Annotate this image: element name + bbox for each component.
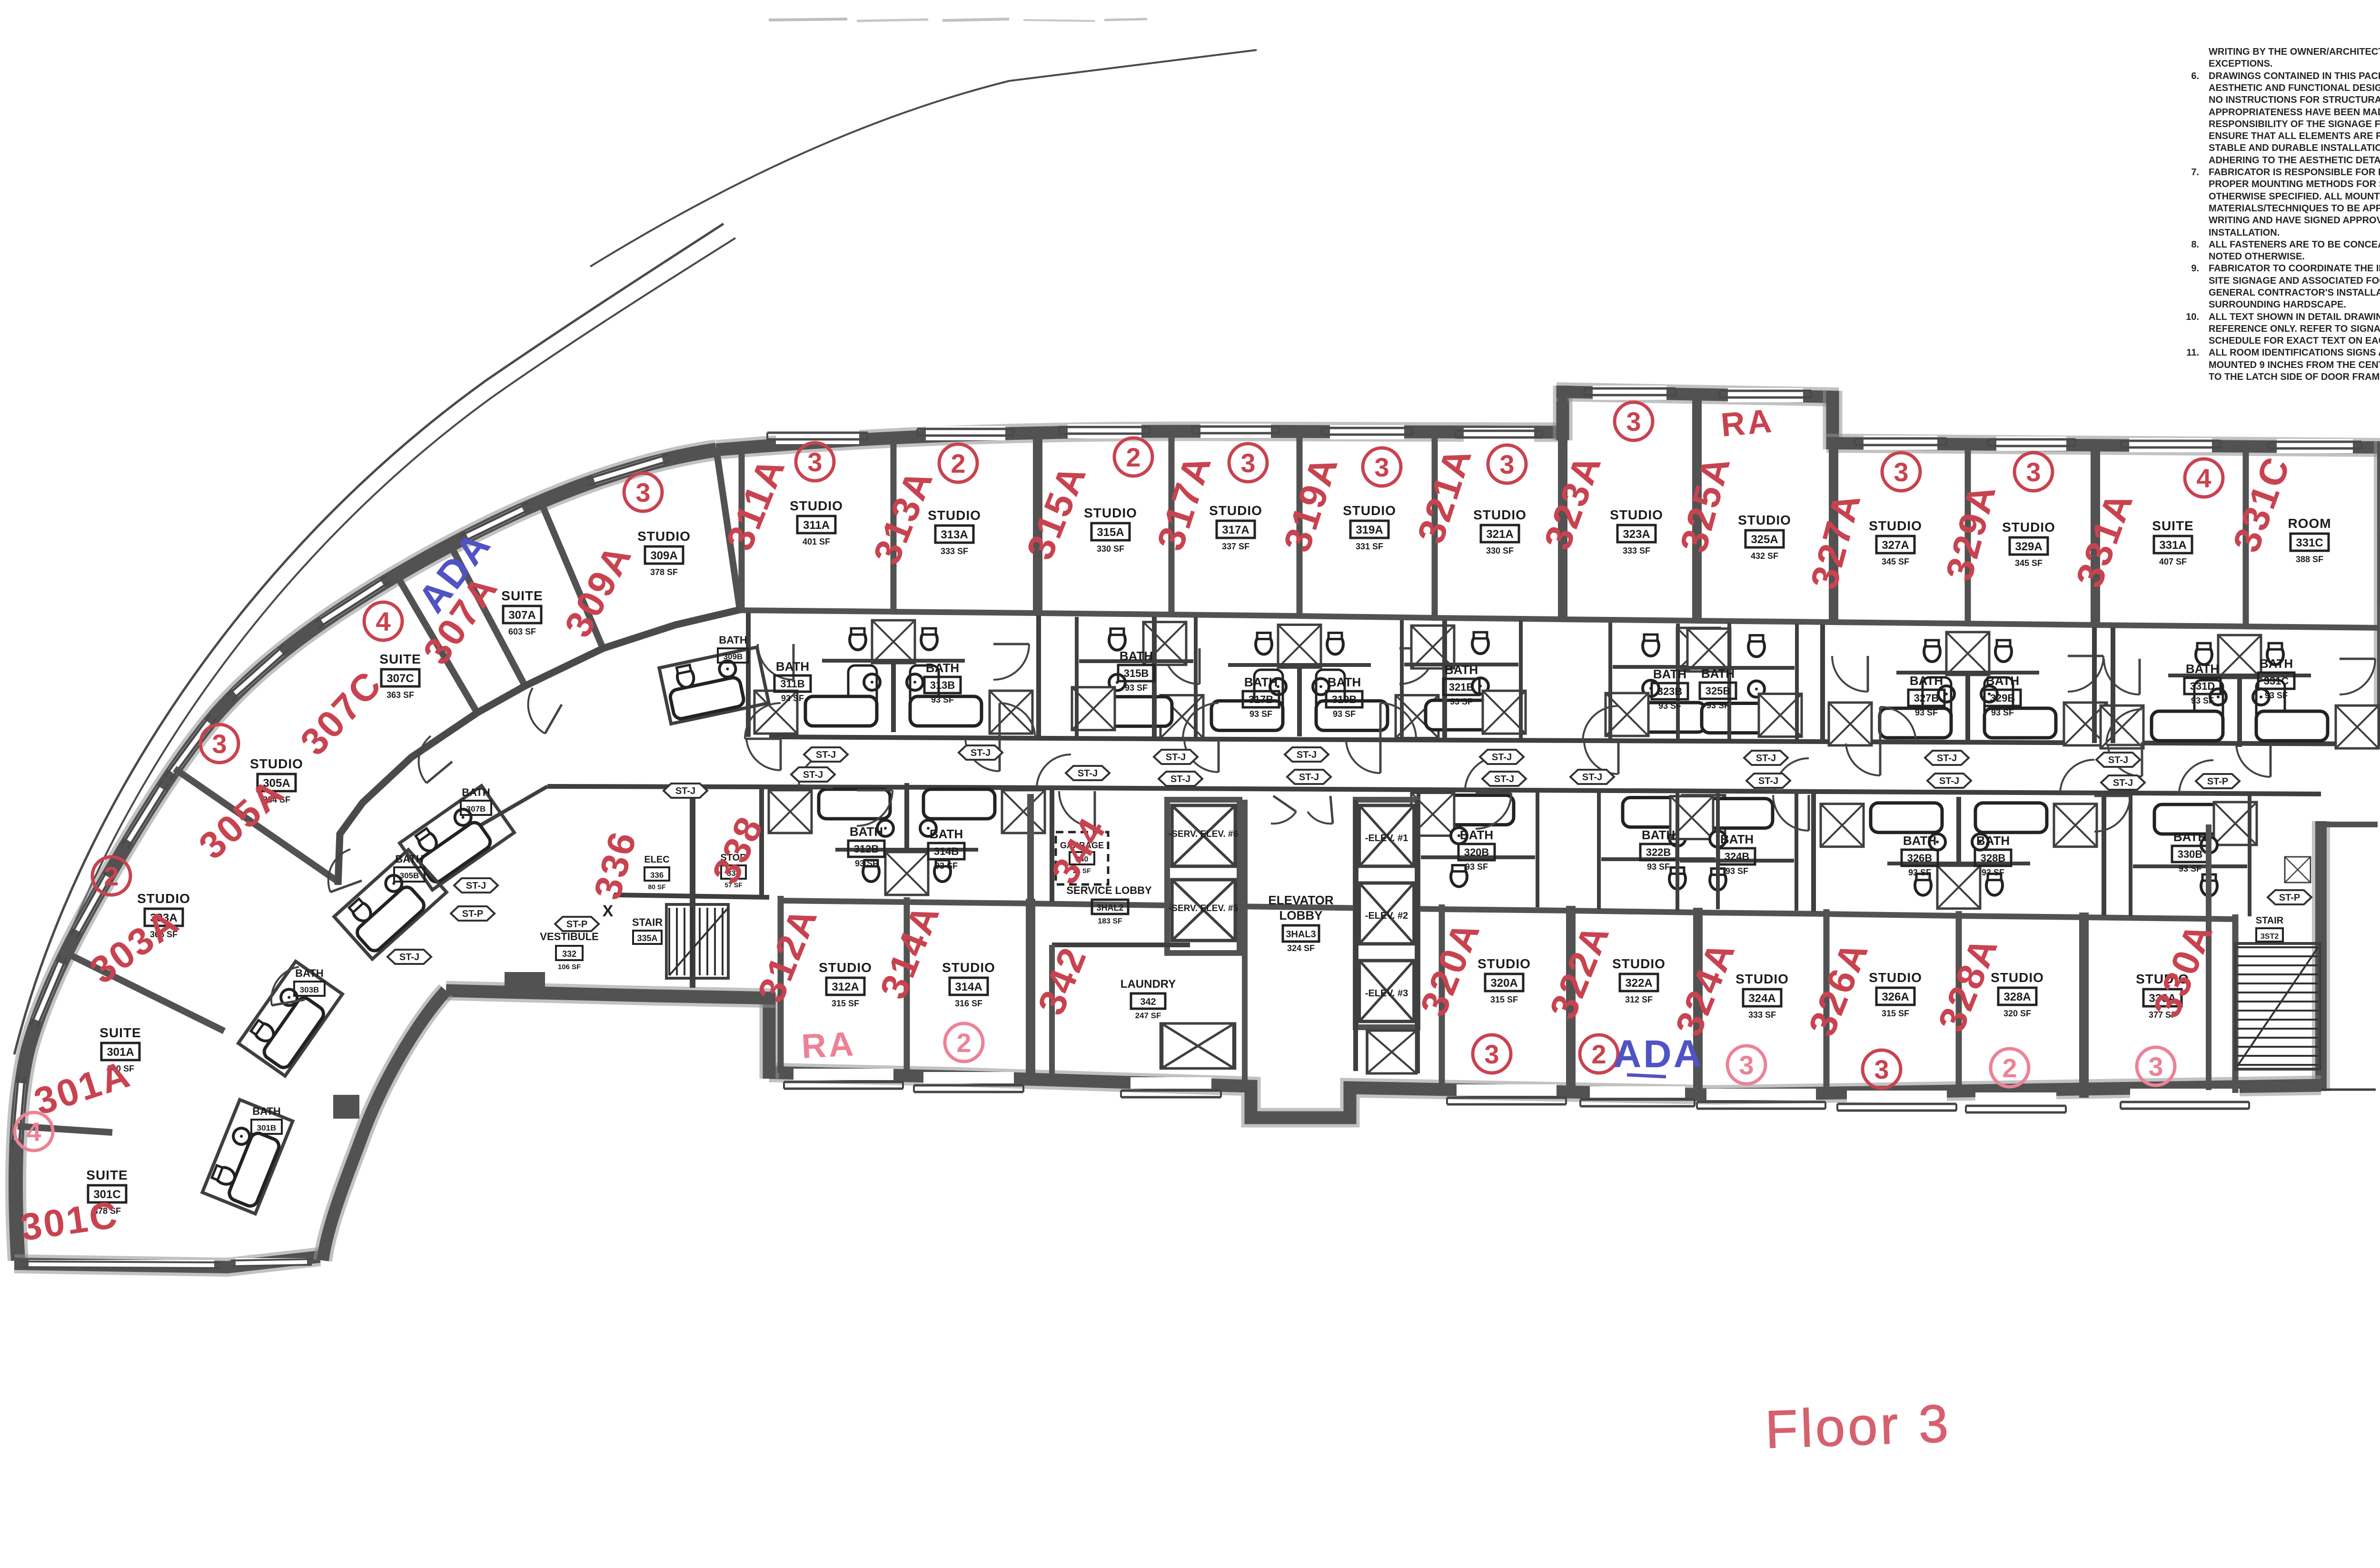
svg-text:4: 4: [376, 606, 390, 636]
svg-text:GENERAL CONTRACTOR'S INSTALLAT: GENERAL CONTRACTOR'S INSTALLATION OF T: [2209, 288, 2380, 298]
svg-text:SCHEDULE FOR EXACT TEXT ON EAC: SCHEDULE FOR EXACT TEXT ON EACH SIGN.: [2209, 336, 2380, 346]
svg-text:345 SF: 345 SF: [2015, 558, 2043, 568]
svg-text:DRAWINGS CONTAINED IN THIS PAC: DRAWINGS CONTAINED IN THIS PACKAGE AR: [2209, 71, 2380, 81]
svg-text:321B: 321B: [1449, 681, 1474, 693]
svg-text:336: 336: [650, 871, 664, 880]
svg-text:3: 3: [212, 729, 227, 759]
svg-text:BATH: BATH: [1701, 666, 1735, 681]
svg-text:345 SF: 345 SF: [1882, 557, 1909, 566]
svg-text:326A: 326A: [1882, 991, 1909, 1003]
svg-text:93 SF: 93 SF: [1706, 701, 1729, 710]
svg-text:401 SF: 401 SF: [803, 537, 830, 546]
svg-text:BATH: BATH: [850, 824, 883, 839]
svg-text:ENSURE THAT ALL ELEMENTS ARE F: ENSURE THAT ALL ELEMENTS ARE FABRICATE: [2209, 131, 2380, 141]
svg-text:PROPER MOUNTING METHODS FOR SI: PROPER MOUNTING METHODS FOR SIGNS UI: [2209, 179, 2380, 189]
svg-text:331D: 331D: [2190, 680, 2215, 692]
svg-text:7.: 7.: [2191, 167, 2199, 178]
svg-text:315 SF: 315 SF: [1490, 995, 1518, 1004]
svg-text:333 SF: 333 SF: [941, 546, 968, 556]
svg-text:WRITING AND HAVE SIGNED APPROV: WRITING AND HAVE SIGNED APPROVAL PRIO: [2209, 215, 2380, 226]
svg-text:333 SF: 333 SF: [1748, 1010, 1776, 1020]
svg-text:STUDIO: STUDIO: [1869, 518, 1922, 533]
svg-text:3: 3: [1240, 448, 1255, 478]
svg-text:309A: 309A: [650, 549, 677, 562]
svg-text:320 SF: 320 SF: [2003, 1009, 2031, 1018]
svg-text:311B: 311B: [780, 678, 804, 690]
svg-text:3: 3: [1894, 457, 1908, 487]
svg-text:2: 2: [104, 861, 119, 891]
svg-text:ALL FASTENERS ARE TO BE CONCEA: ALL FASTENERS ARE TO BE CONCEALED UNLE: [2209, 239, 2380, 250]
svg-text:3: 3: [635, 477, 650, 507]
svg-text:BATH: BATH: [1910, 674, 1943, 688]
svg-text:BATH: BATH: [719, 634, 747, 646]
svg-text:317A: 317A: [1222, 524, 1249, 536]
svg-text:93 SF: 93 SF: [1249, 709, 1272, 719]
svg-text:ALL ROOM IDENTIFICATIONS SIGNS: ALL ROOM IDENTIFICATIONS SIGNS ARE TO B: [2209, 347, 2380, 358]
svg-text:BATH: BATH: [462, 786, 490, 798]
svg-text:93 SF: 93 SF: [1982, 868, 2004, 877]
svg-text:93 SF: 93 SF: [1647, 862, 1670, 872]
svg-text:STUDIO: STUDIO: [1738, 513, 1791, 527]
svg-text:93 SF: 93 SF: [1725, 866, 1748, 876]
svg-text:STUDIO: STUDIO: [1209, 503, 1262, 518]
svg-text:BATH: BATH: [1642, 828, 1675, 842]
svg-text:ELEVATOR: ELEVATOR: [1268, 893, 1333, 907]
svg-text:BATH: BATH: [2260, 656, 2293, 671]
svg-text:BATH: BATH: [2173, 830, 2207, 844]
svg-text:2: 2: [1126, 442, 1140, 472]
svg-text:2: 2: [956, 1028, 971, 1058]
svg-text:331C: 331C: [2296, 536, 2323, 549]
svg-text:BATH: BATH: [1986, 674, 2019, 688]
svg-text:3: 3: [1739, 1050, 1754, 1080]
svg-text:AESTHETIC AND FUNCTIONAL DESIG: AESTHETIC AND FUNCTIONAL DESIGN INTENT: [2209, 83, 2380, 93]
svg-text:3: 3: [1484, 1039, 1499, 1069]
svg-text:ELEC: ELEC: [644, 854, 669, 865]
svg-text:3: 3: [1499, 449, 1514, 479]
svg-text:2: 2: [1591, 1039, 1606, 1069]
svg-text:BATH: BATH: [930, 827, 963, 841]
svg-text:BATH: BATH: [1460, 828, 1493, 842]
svg-text:324A: 324A: [1748, 992, 1775, 1005]
svg-text:Floor 3: Floor 3: [1764, 1393, 1952, 1459]
svg-text:-ELEV. #2: -ELEV. #2: [1365, 911, 1408, 921]
svg-text:6.: 6.: [2191, 71, 2199, 81]
svg-text:93 SF: 93 SF: [1915, 708, 1938, 717]
svg-text:BATH: BATH: [1244, 675, 1278, 689]
svg-text:407 SF: 407 SF: [2159, 557, 2187, 566]
svg-text:183 SF: 183 SF: [1098, 917, 1122, 925]
svg-text:309B: 309B: [724, 652, 743, 661]
svg-text:BATH: BATH: [2186, 662, 2219, 676]
svg-text:305B: 305B: [400, 871, 419, 880]
svg-text:325A: 325A: [1751, 533, 1778, 546]
svg-text:OTHERWISE SPECIFIED. ALL MOUN: OTHERWISE SPECIFIED. ALL MOUNTING: [2209, 191, 2380, 202]
svg-text:328A: 328A: [2003, 991, 2031, 1003]
svg-text:BATH: BATH: [926, 661, 959, 675]
svg-text:STUDIO: STUDIO: [1991, 970, 2044, 985]
svg-text:320A: 320A: [1490, 977, 1517, 990]
svg-text:ROOM: ROOM: [2288, 516, 2331, 531]
svg-text:-ELEV. #3: -ELEV. #3: [1365, 988, 1408, 999]
svg-text:247 SF: 247 SF: [1135, 1011, 1161, 1020]
svg-text:335A: 335A: [637, 933, 657, 943]
svg-text:3HAL2: 3HAL2: [1096, 903, 1123, 913]
svg-text:3: 3: [2026, 457, 2041, 487]
svg-text:328B: 328B: [1981, 852, 2006, 864]
svg-text:331C: 331C: [2264, 675, 2289, 687]
svg-text:2: 2: [951, 448, 965, 478]
svg-text:REFERENCE ONLY. REFER TO SIGN: REFERENCE ONLY. REFER TO SIGNAGE MESSA: [2209, 324, 2380, 334]
svg-text:332: 332: [562, 949, 576, 959]
svg-text:4: 4: [2196, 463, 2211, 493]
svg-text:3: 3: [2148, 1052, 2163, 1082]
svg-text:BATH: BATH: [1328, 675, 1361, 689]
svg-text:315 SF: 315 SF: [832, 999, 859, 1008]
svg-text:3HAL3: 3HAL3: [1286, 929, 1316, 940]
svg-text:311A: 311A: [803, 519, 830, 532]
svg-text:9.: 9.: [2191, 263, 2199, 274]
svg-text:BATH: BATH: [395, 853, 423, 865]
svg-text:MOUNTED 9 INCHES FROM THE CENT: MOUNTED 9 INCHES FROM THE CENTER OF T: [2209, 360, 2380, 370]
svg-text:312B: 312B: [854, 843, 879, 855]
svg-text:MATERIALS/TECHNIQUES TO BE APP: MATERIALS/TECHNIQUES TO BE APPROVED II: [2209, 203, 2380, 214]
svg-text:325B: 325B: [1706, 685, 1731, 697]
svg-text:330 SF: 330 SF: [1097, 544, 1124, 554]
svg-text:STUDIO: STUDIO: [1478, 956, 1531, 971]
svg-text:NOTED OTHERWISE.: NOTED OTHERWISE.: [2209, 251, 2305, 262]
svg-text:93 SF: 93 SF: [781, 694, 804, 703]
svg-text:324B: 324B: [1725, 851, 1750, 863]
svg-text:603 SF: 603 SF: [508, 627, 536, 636]
svg-text:315A: 315A: [1097, 526, 1124, 539]
svg-text:RA: RA: [1719, 402, 1775, 443]
svg-text:342: 342: [1140, 997, 1156, 1007]
svg-text:LAUNDRY: LAUNDRY: [1121, 978, 1176, 991]
svg-text:STUDIO: STUDIO: [250, 756, 303, 771]
svg-text:ADA: ADA: [1613, 1032, 1704, 1076]
svg-text:STUDIO: STUDIO: [2002, 520, 2055, 535]
svg-text:BATH: BATH: [1720, 832, 1754, 846]
svg-text:STUDIO: STUDIO: [1343, 503, 1396, 518]
svg-text:SITE SIGNAGE AND ASSOCIATED FO: SITE SIGNAGE AND ASSOCIATED FOOTINGS W: [2209, 276, 2380, 286]
svg-text:303B: 303B: [300, 985, 319, 994]
svg-text:388 SF: 388 SF: [2296, 555, 2323, 564]
svg-text:STUDIO: STUDIO: [1612, 956, 1666, 971]
svg-text:SUITE: SUITE: [2152, 518, 2193, 533]
svg-text:316 SF: 316 SF: [955, 999, 982, 1008]
svg-text:STUDIO: STUDIO: [928, 508, 981, 523]
svg-text:106 SF: 106 SF: [558, 963, 581, 971]
svg-text:NO INSTRUCTIONS FOR STRUCTURAL: NO INSTRUCTIONS FOR STRUCTURAL: [2209, 95, 2380, 105]
svg-text:3: 3: [807, 447, 822, 477]
svg-text:TO THE LATCH SIDE OF DOOR FRAM: TO THE LATCH SIDE OF DOOR FRAME.: [2209, 372, 2380, 382]
svg-text:327A: 327A: [1882, 539, 1909, 552]
svg-text:321A: 321A: [1486, 528, 1513, 541]
svg-text:314A: 314A: [955, 981, 982, 993]
svg-text:313B: 313B: [930, 679, 955, 691]
svg-text:BATH: BATH: [1445, 663, 1478, 677]
svg-text:330 SF: 330 SF: [1486, 546, 1514, 556]
svg-text:STUDIO: STUDIO: [1869, 970, 1922, 985]
svg-text:93 SF: 93 SF: [2179, 864, 2201, 873]
svg-text:307A: 307A: [508, 609, 535, 622]
svg-text:RA: RA: [801, 1025, 857, 1066]
svg-text:STUDIO: STUDIO: [819, 960, 872, 975]
svg-text:ADHERING TO THE AESTHETIC DETA: ADHERING TO THE AESTHETIC DETAILS INDIC: [2209, 155, 2380, 166]
svg-text:313A: 313A: [941, 528, 968, 541]
svg-text:93 SF: 93 SF: [1465, 862, 1488, 872]
svg-text:FABRICATOR TO COORDINATE THE I: FABRICATOR TO COORDINATE THE INSTALLAT: [2209, 263, 2380, 274]
svg-text:BATH: BATH: [1976, 834, 2010, 848]
svg-text:337 SF: 337 SF: [1222, 542, 1249, 551]
svg-text:331 SF: 331 SF: [1356, 542, 1383, 551]
svg-text:93 SF: 93 SF: [1450, 697, 1473, 706]
svg-text:STAIR: STAIR: [632, 916, 663, 928]
svg-text:STUDIO: STUDIO: [1473, 507, 1527, 522]
svg-text:329A: 329A: [2015, 540, 2042, 553]
svg-text:323B: 323B: [1657, 685, 1683, 697]
svg-text:BATH: BATH: [295, 967, 323, 979]
svg-text:STAIR: STAIR: [2256, 915, 2284, 926]
svg-text:2: 2: [2002, 1053, 2017, 1083]
svg-text:93 SF: 93 SF: [1991, 708, 2014, 717]
svg-text:3ST2: 3ST2: [2261, 933, 2279, 941]
svg-text:-ELEV. #1: -ELEV. #1: [1365, 833, 1408, 844]
svg-text:312 SF: 312 SF: [1625, 995, 1653, 1004]
svg-text:93 SF: 93 SF: [1658, 701, 1681, 711]
svg-text:319B: 319B: [1332, 694, 1357, 705]
svg-text:10.: 10.: [2186, 312, 2199, 322]
svg-text:93 SF: 93 SF: [1333, 709, 1356, 719]
svg-text:93 SF: 93 SF: [1125, 683, 1148, 693]
svg-text:317B: 317B: [1249, 694, 1274, 705]
svg-text:STUDIO: STUDIO: [1735, 972, 1789, 986]
svg-text:11.: 11.: [2186, 347, 2199, 358]
svg-text:STUDIO: STUDIO: [790, 498, 843, 513]
svg-text:3: 3: [1626, 407, 1641, 437]
svg-text:307C: 307C: [387, 672, 414, 685]
svg-text:4: 4: [26, 1117, 41, 1147]
svg-text:STUDIO: STUDIO: [1610, 507, 1663, 522]
svg-text:SUITE: SUITE: [86, 1168, 128, 1182]
svg-text:333 SF: 333 SF: [1623, 546, 1650, 556]
svg-text:93 SF: 93 SF: [931, 695, 954, 705]
svg-text:STUDIO: STUDIO: [637, 529, 691, 544]
svg-text:315B: 315B: [1124, 667, 1149, 679]
svg-text:322B: 322B: [1646, 846, 1671, 858]
svg-text:-SERV. ELEV. #5: -SERV. ELEV. #5: [1169, 903, 1239, 913]
svg-text:322A: 322A: [1625, 977, 1652, 990]
svg-text:314B: 314B: [934, 845, 959, 857]
svg-text:ALL TEXT SHOWN IN DETAIL DRAWI: ALL TEXT SHOWN IN DETAIL DRAWINGS IS FO: [2209, 312, 2380, 322]
svg-text:323A: 323A: [1623, 528, 1650, 541]
svg-text:SURROUNDING HARDSCAPE.: SURROUNDING HARDSCAPE.: [2209, 299, 2346, 310]
svg-text:BATH: BATH: [1903, 834, 1936, 848]
svg-text:WRITING BY THE OWNER/ARCHITECT: WRITING BY THE OWNER/ARCHITECT: NO: [2209, 47, 2380, 57]
svg-text:324 SF: 324 SF: [1287, 943, 1315, 953]
svg-text:315 SF: 315 SF: [1882, 1009, 1909, 1018]
svg-text:SUITE: SUITE: [99, 1025, 141, 1040]
svg-text:378 SF: 378 SF: [650, 567, 678, 577]
svg-text:STUDIO: STUDIO: [1084, 506, 1137, 520]
svg-text:326B: 326B: [1907, 852, 1933, 864]
svg-text:307B: 307B: [466, 804, 486, 814]
svg-text:BATH: BATH: [776, 659, 809, 674]
svg-text:93 SF: 93 SF: [2265, 691, 2288, 700]
svg-text:319A: 319A: [1356, 524, 1383, 536]
svg-text:BATH: BATH: [1653, 667, 1686, 681]
svg-text:BATH: BATH: [1120, 649, 1153, 663]
svg-text:301B: 301B: [257, 1123, 277, 1132]
svg-text:SUITE: SUITE: [501, 588, 543, 603]
svg-text:EXCEPTIONS.: EXCEPTIONS.: [2209, 59, 2272, 69]
svg-text:312A: 312A: [832, 981, 859, 993]
svg-text:APPROPRIATENESS HAVE BEEN MADE: APPROPRIATENESS HAVE BEEN MADE. IT IS T: [2209, 107, 2380, 118]
svg-text:BATH: BATH: [252, 1105, 280, 1117]
svg-text:LOBBY: LOBBY: [1279, 908, 1323, 923]
svg-text:RESPONSIBILITY OF THE SIGNAGE: RESPONSIBILITY OF THE SIGNAGE FABRICATO: [2209, 119, 2380, 129]
svg-text:329B: 329B: [1990, 692, 2015, 704]
svg-text:FABRICATOR IS RESPONSIBLE FOR: FABRICATOR IS RESPONSIBLE FOR DETERMIN: [2209, 167, 2380, 178]
svg-text:VESTIBULE: VESTIBULE: [540, 931, 598, 943]
svg-text:93 SF: 93 SF: [855, 859, 878, 868]
svg-text:363 SF: 363 SF: [387, 690, 414, 700]
svg-text:STABLE AND DURABLE INSTALLATIO: STABLE AND DURABLE INSTALLATION WHILE: [2209, 143, 2380, 153]
svg-text:327B: 327B: [1914, 692, 1939, 704]
svg-text:80 SF: 80 SF: [648, 883, 666, 891]
svg-text:93 SF: 93 SF: [1908, 868, 1931, 877]
svg-text:330B: 330B: [2178, 848, 2203, 860]
svg-text:320B: 320B: [1464, 846, 1489, 858]
svg-text:STUDIO: STUDIO: [942, 960, 995, 975]
svg-text:3: 3: [1374, 452, 1389, 482]
svg-text:93 SF: 93 SF: [2191, 696, 2214, 705]
svg-text:8.: 8.: [2191, 239, 2199, 250]
svg-text:432 SF: 432 SF: [1751, 551, 1778, 561]
svg-text:3: 3: [1874, 1054, 1889, 1084]
svg-text:-SERV. ELEV. #6: -SERV. ELEV. #6: [1169, 829, 1238, 839]
svg-text:SUITE: SUITE: [379, 652, 421, 666]
svg-text:X: X: [603, 902, 614, 920]
svg-text:INSTALLATION.: INSTALLATION.: [2209, 228, 2280, 238]
svg-text:331A: 331A: [2159, 539, 2186, 552]
svg-text:93 SF: 93 SF: [935, 861, 958, 871]
